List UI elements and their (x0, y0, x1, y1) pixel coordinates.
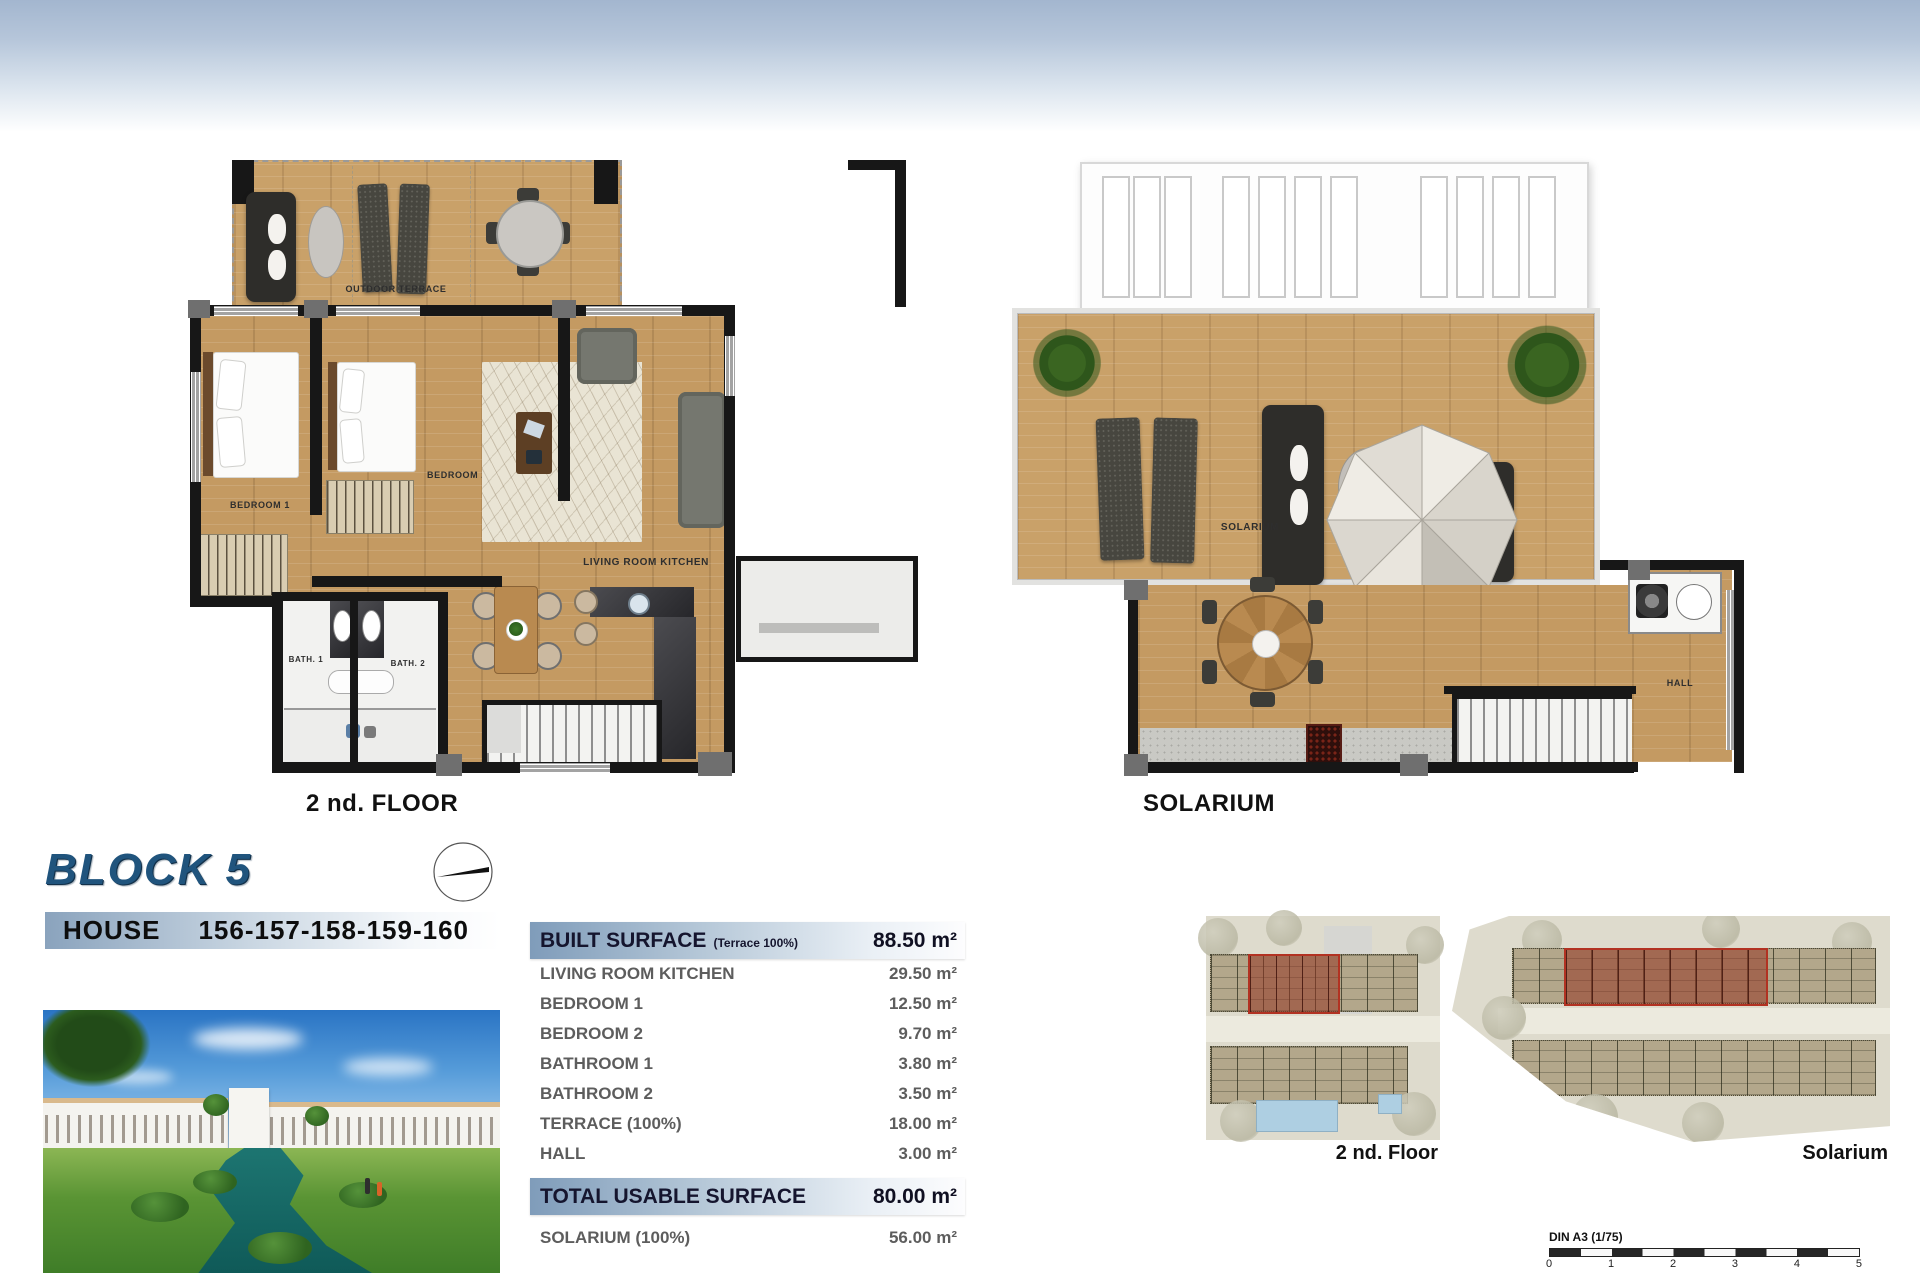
site1-pool (1256, 1100, 1338, 1132)
photo-cloud-1 (193, 1028, 303, 1050)
bath2-label: BATH. 2 (384, 659, 432, 668)
table-row: SOLARIUM (100%) 56.00 m² (530, 1226, 965, 1250)
wall-bed2-bottom (312, 576, 502, 587)
bed1-wardrobe (198, 534, 288, 596)
site-plan-solarium-caption: Solarium (1790, 1142, 1888, 1165)
row-label: BATHROOM 2 (540, 1084, 653, 1104)
sol-pillar-3 (1400, 754, 1428, 776)
site1-highlight-units (1248, 954, 1340, 1014)
solarium-caption: SOLARIUM (1143, 790, 1275, 818)
built-surface-header: BUILT SURFACE(Terrace 100%) 88.50 m² (530, 922, 965, 959)
solarium-sofa-vertical (1262, 405, 1324, 585)
bed2 (337, 362, 416, 472)
bed2-pillow-2 (339, 418, 365, 464)
solarium-chair-s (1250, 692, 1275, 707)
shower-counter (284, 708, 436, 762)
site2-tree-2 (1702, 910, 1740, 948)
solarium-room-label: SOLARIUM (1200, 522, 1300, 533)
pergola-slat-6 (1294, 176, 1322, 298)
terrace-sofa-cushion-1 (268, 214, 286, 244)
footprint-cutout (190, 607, 272, 782)
row-label: TERRACE (100%) (540, 1114, 682, 1134)
sol-pillar-2 (1124, 754, 1148, 776)
terrace-side-table (308, 206, 344, 278)
site-plan-second-floor (1206, 916, 1440, 1140)
brochure-page: OUTDOOR TERRACE BATH. 1 BATH. 2 BEDROOM … (0, 0, 1920, 1280)
photo-person-2 (377, 1182, 382, 1196)
shower-fixture-2 (364, 726, 376, 738)
sol-wall-hall-top (1600, 560, 1734, 570)
site-plan-second-floor-caption: 2 nd. Floor (1330, 1142, 1438, 1165)
solarium-chair-nw (1202, 600, 1217, 624)
built-surface-label: BUILT SURFACE (540, 929, 706, 952)
scale-bar-ticks: 0 1 2 3 4 5 (1546, 1258, 1862, 1270)
row-value: 29.50 m² (889, 964, 957, 984)
pergola-slat-3 (1164, 176, 1192, 298)
wall-bottom-bath (272, 762, 448, 773)
row-value: 9.70 m² (898, 1024, 957, 1044)
house-label: HOUSE (63, 915, 160, 946)
pergola-slat-8 (1420, 176, 1448, 298)
terrace-bay-line-2 (470, 166, 471, 302)
wall-bed1-bed2 (310, 305, 322, 515)
pillar-1 (188, 300, 210, 318)
row-value: 56.00 m² (889, 1228, 957, 1248)
row-label: BEDROOM 1 (540, 994, 643, 1014)
wall-bath-top (272, 592, 448, 601)
bbq-grill (1306, 724, 1342, 766)
stairs-landing (487, 705, 521, 753)
bed1-pillow-1 (215, 359, 246, 411)
window-left-wall (191, 372, 201, 482)
terrace-label: OUTDOOR TERRACE (326, 284, 466, 294)
row-label: HALL (540, 1144, 585, 1164)
row-value: 3.80 m² (898, 1054, 957, 1074)
pergola-slat-7 (1330, 176, 1358, 298)
photo-palm-2 (305, 1106, 329, 1126)
site2-tree-4 (1572, 1094, 1618, 1140)
solarium-table-center (1252, 630, 1280, 658)
scale-tick: 0 (1546, 1258, 1552, 1270)
terrace-lounger-2 (396, 184, 430, 295)
second-floor-caption: 2 nd. FLOOR (306, 790, 458, 818)
pergola-slat-1 (1102, 176, 1130, 298)
dining-plant (509, 622, 523, 636)
bed1 (213, 352, 299, 478)
photo-bush-2 (131, 1192, 189, 1222)
site2-road (1498, 1008, 1890, 1034)
built-surface-sub: (Terrace 100%) (713, 936, 798, 950)
pergola-slat-10 (1492, 176, 1520, 298)
site1-pool-small (1378, 1094, 1402, 1114)
photo-palm-1 (203, 1094, 229, 1116)
window-bed2 (336, 306, 420, 316)
solarium-sofa-cushion-2 (1290, 489, 1308, 525)
site2-highlight-units (1564, 948, 1768, 1006)
photo-person-1 (365, 1178, 370, 1194)
bath-sink-2 (362, 610, 381, 642)
photo-tower (229, 1088, 269, 1152)
total-usable-label: TOTAL USABLE SURFACE (540, 1185, 806, 1209)
block-title: BLOCK 5 (45, 845, 252, 895)
scale-bar-label: DIN A3 (1/75) (1549, 1230, 1861, 1244)
table-row: HALL 3.00 m² (530, 1142, 965, 1166)
pergola-slat-11 (1528, 176, 1556, 298)
built-surface-title: BUILT SURFACE(Terrace 100%) (540, 929, 798, 953)
table-row: BEDROOM 2 9.70 m² (530, 1022, 965, 1046)
scale-tick: 1 (1608, 1258, 1614, 1270)
hall-sink (1676, 584, 1712, 620)
photo-bush-4 (248, 1232, 312, 1264)
table-row: BATHROOM 1 3.80 m² (530, 1052, 965, 1076)
scale-tick: 3 (1732, 1258, 1738, 1270)
scale-tick: 2 (1670, 1258, 1676, 1270)
row-label: SOLARIUM (100%) (540, 1228, 690, 1248)
bedroom1-label: BEDROOM 1 (218, 500, 302, 510)
table-row: BEDROOM 1 12.50 m² (530, 992, 965, 1016)
window-bed1 (214, 306, 298, 316)
solarium-round-table (1217, 595, 1313, 691)
hall-sink-counter (1628, 572, 1722, 634)
bed2-wardrobe (326, 480, 414, 534)
pergola-slat-5 (1258, 176, 1286, 298)
row-label: BEDROOM 2 (540, 1024, 643, 1044)
house-numbers: 156-157-158-159-160 (198, 915, 469, 946)
terrace-lounger-1 (357, 183, 393, 292)
pillar-4 (436, 754, 462, 776)
bed1-headboard (203, 352, 213, 476)
solarium-plant-right (1490, 308, 1604, 422)
pergola-slat-2 (1133, 176, 1161, 298)
site2-tree-6 (1482, 996, 1526, 1040)
wall-bath-divider (350, 596, 358, 766)
house-bar: HOUSE 156-157-158-159-160 (45, 912, 500, 949)
photo-building-left-windows (45, 1115, 225, 1143)
photo-cloud-2 (343, 1058, 433, 1076)
total-usable-header: TOTAL USABLE SURFACE 80.00 m² (530, 1178, 965, 1215)
terrace-bay-line-1 (352, 166, 353, 302)
hall-label: HALL (1650, 678, 1710, 688)
site-plan-solarium (1452, 916, 1890, 1142)
table-row: BATHROOM 2 3.50 m² (530, 1082, 965, 1106)
scale-tick: 4 (1794, 1258, 1800, 1270)
scale-bar-ruler (1549, 1248, 1860, 1257)
row-label: LIVING ROOM KITCHEN (540, 964, 735, 984)
bathtub (328, 670, 394, 694)
photo-building-right-windows (270, 1117, 498, 1145)
wall-left-step-h (190, 596, 282, 607)
scale-bar: DIN A3 (1/75) 0 1 2 3 4 5 (1549, 1230, 1861, 1276)
row-label: BATHROOM 1 (540, 1054, 653, 1074)
site1-tree-2 (1266, 910, 1302, 946)
floorplan-solarium: SOLARIUM HALL SO (960, 0, 1920, 830)
solarium-chair-n (1250, 577, 1275, 592)
surface-table: BUILT SURFACE(Terrace 100%) 88.50 m² LIV… (530, 0, 965, 1280)
photo-bush-1 (193, 1170, 237, 1194)
solarium-lounger-1 (1096, 417, 1145, 560)
sol-wall-hall-right (1734, 560, 1744, 773)
sol-wall-bottom (1128, 762, 1634, 773)
sol-wall-left (1128, 585, 1138, 772)
bath1-label: BATH. 1 (282, 655, 330, 664)
north-indicator-icon (432, 841, 494, 903)
built-surface-value: 88.50 m² (873, 929, 957, 953)
solarium-lounger-2 (1150, 417, 1198, 563)
bed2-headboard (328, 362, 337, 470)
pergola-slat-4 (1222, 176, 1250, 298)
hall-washer (1636, 584, 1668, 618)
pergola-slat-9 (1456, 176, 1484, 298)
row-value: 3.50 m² (898, 1084, 957, 1104)
project-photo (43, 1010, 500, 1273)
site2-building-bottom (1512, 1040, 1876, 1096)
wall-left-step-v (272, 596, 283, 772)
solarium-sofa-cushion-1 (1290, 445, 1308, 481)
sol-pillar-4 (1628, 560, 1650, 580)
site1-tree-1 (1198, 918, 1238, 958)
wall-bath-living (438, 592, 448, 773)
total-usable-value: 80.00 m² (873, 1185, 957, 1209)
site1-road (1206, 1016, 1440, 1042)
solarium-plant-left (1018, 314, 1116, 412)
solarium-chair-se (1308, 660, 1323, 684)
scale-tick: 5 (1856, 1258, 1862, 1270)
table-row: TERRACE (100%) 18.00 m² (530, 1112, 965, 1136)
row-value: 3.00 m² (898, 1144, 957, 1164)
solarium-chair-sw (1202, 660, 1217, 684)
pillar-2 (304, 300, 328, 318)
site2-tree-5 (1682, 1102, 1724, 1144)
table-row: LIVING ROOM KITCHEN 29.50 m² (530, 962, 965, 986)
solarium-chair-ne (1308, 600, 1323, 624)
bed2-pillow-1 (339, 368, 365, 414)
bed1-pillow-2 (216, 416, 246, 468)
sol-pillar-1 (1124, 580, 1148, 600)
row-value: 18.00 m² (889, 1114, 957, 1134)
terrace-sofa (246, 192, 296, 302)
row-value: 12.50 m² (889, 994, 957, 1014)
stairs-solarium (1452, 694, 1638, 772)
sol-wall-stairs-top (1444, 686, 1636, 694)
terrace-sofa-cushion-2 (268, 250, 286, 280)
